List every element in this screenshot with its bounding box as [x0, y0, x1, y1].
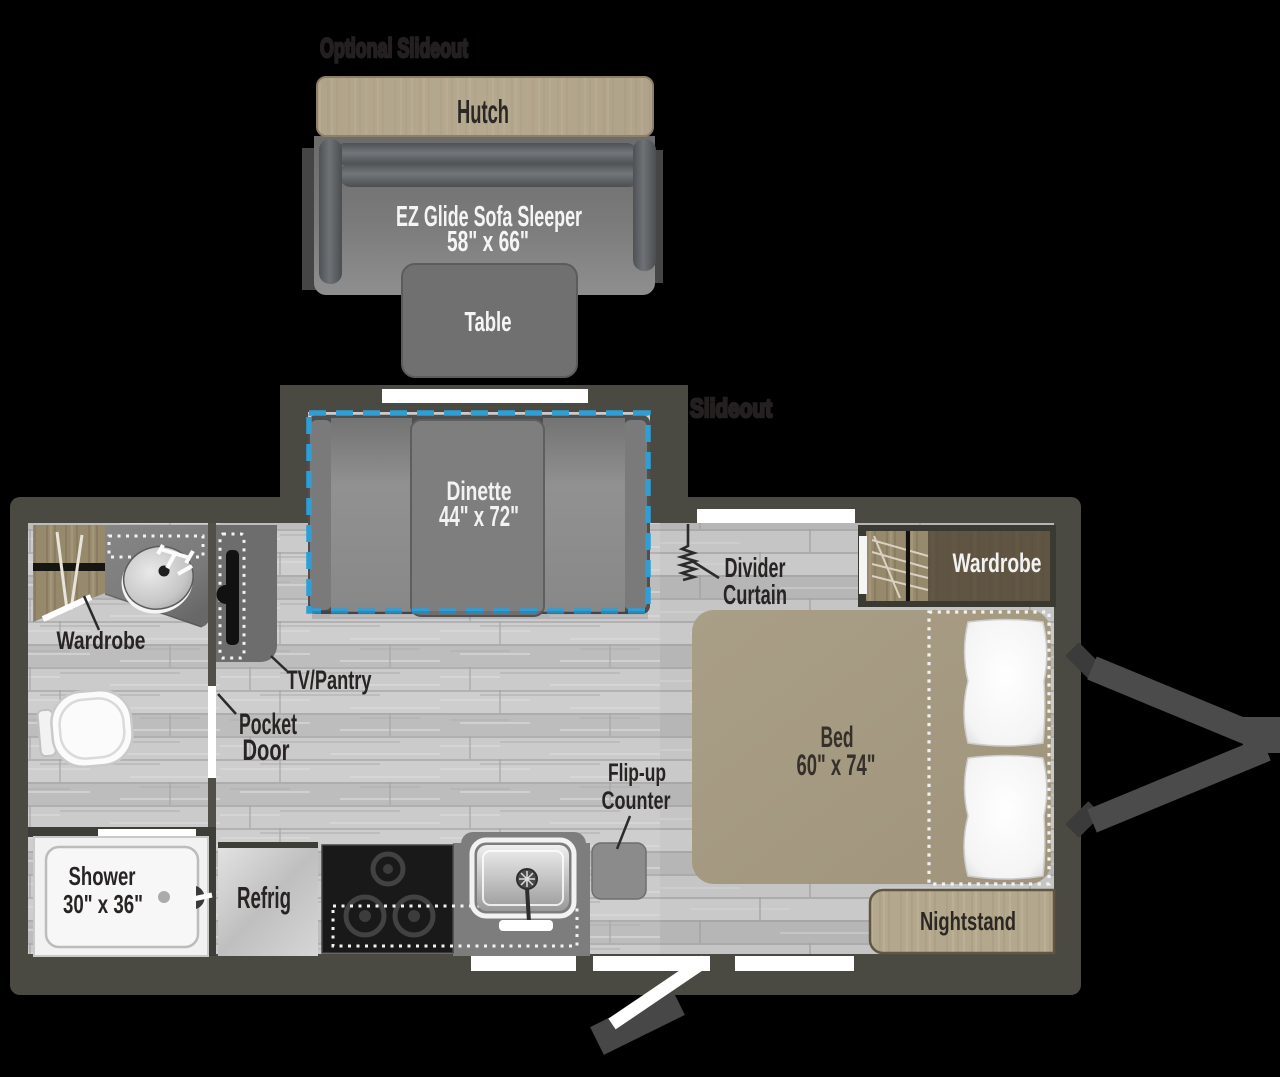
svg-text:Hutch: Hutch: [457, 93, 509, 130]
svg-text:TV/Pantry: TV/Pantry: [287, 665, 372, 695]
svg-text:Refrig: Refrig: [237, 880, 291, 915]
svg-text:58" x 66": 58" x 66": [447, 226, 529, 258]
svg-text:Shower: Shower: [69, 861, 136, 891]
svg-text:Wardrobe: Wardrobe: [953, 548, 1042, 578]
svg-text:Counter: Counter: [602, 787, 671, 815]
svg-text:60" x 74": 60" x 74": [797, 749, 876, 782]
svg-text:Door: Door: [243, 734, 290, 767]
svg-text:Flip-up: Flip-up: [608, 759, 666, 787]
svg-text:Optional Slideout: Optional Slideout: [320, 33, 468, 63]
svg-text:Nightstand: Nightstand: [920, 906, 1016, 936]
svg-text:44" x 72": 44" x 72": [439, 501, 519, 533]
svg-text:Wardrobe: Wardrobe: [57, 627, 146, 655]
svg-text:Curtain: Curtain: [723, 579, 787, 610]
svg-text:Slideout: Slideout: [690, 393, 772, 423]
svg-text:Table: Table: [465, 306, 512, 337]
svg-text:30" x 36": 30" x 36": [63, 889, 143, 919]
